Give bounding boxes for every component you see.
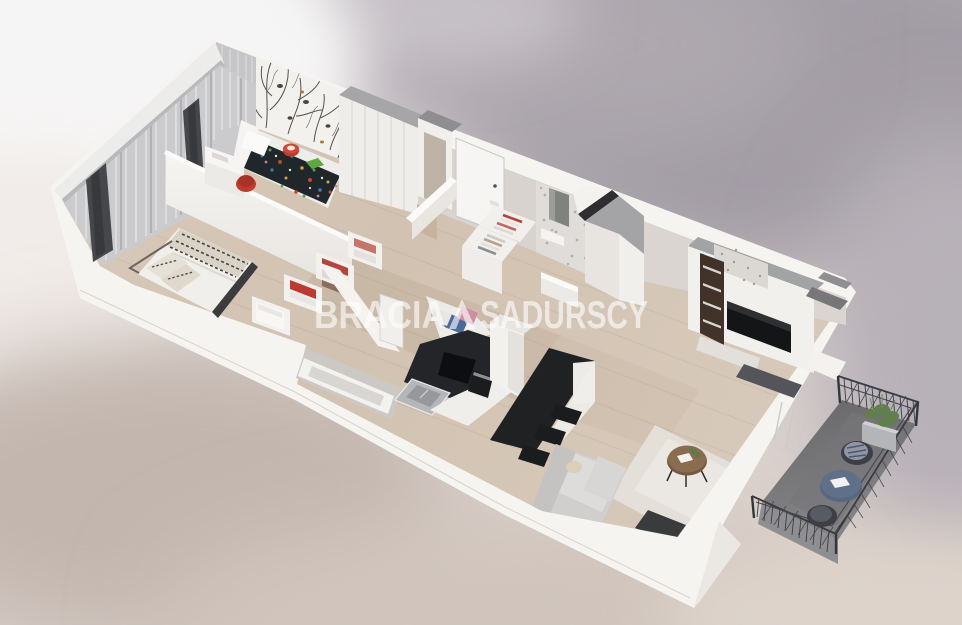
svg-text:BRACIA: BRACIA	[314, 294, 446, 337]
svg-text:SADURSCY: SADURSCY	[480, 294, 648, 337]
